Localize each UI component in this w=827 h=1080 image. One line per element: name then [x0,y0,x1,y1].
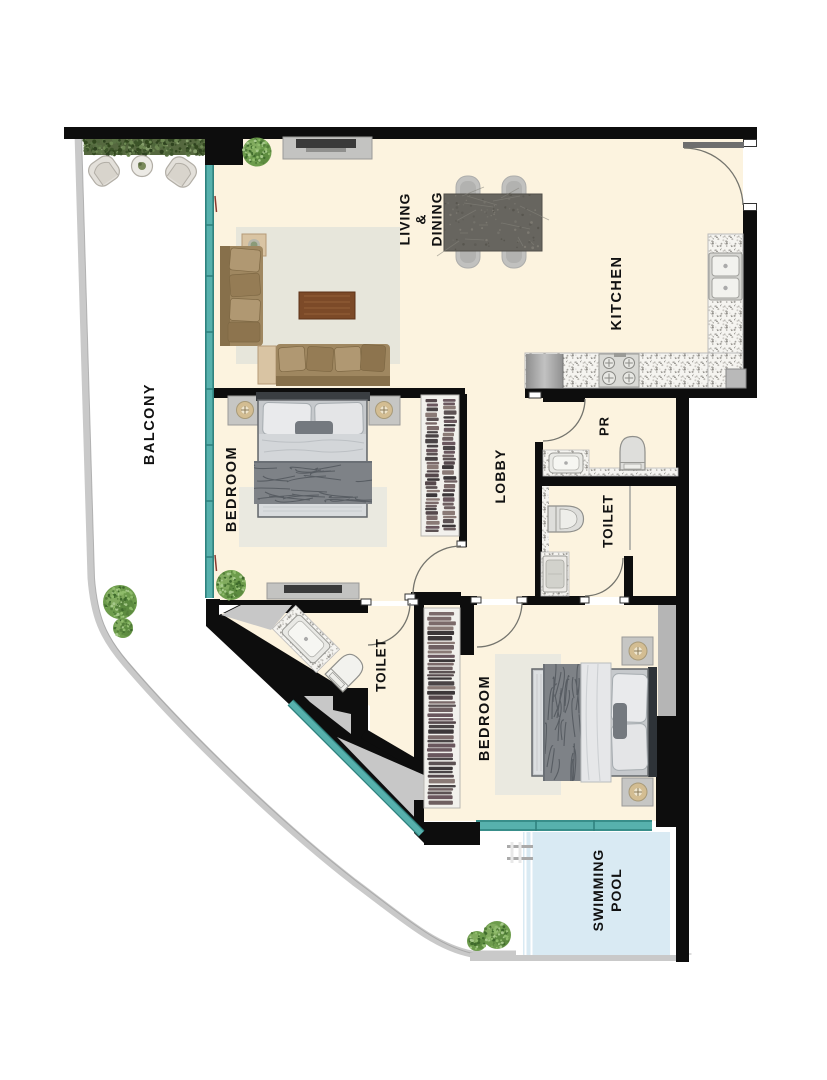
svg-text:DINING: DINING [429,192,445,247]
svg-text:SWIMMING: SWIMMING [590,849,606,932]
svg-text:LIVING: LIVING [397,193,413,246]
svg-text:&: & [413,213,429,224]
svg-text:TOILET: TOILET [374,638,389,692]
svg-text:BEDROOM: BEDROOM [477,675,493,761]
svg-text:POOL: POOL [608,868,624,912]
svg-text:KITCHEN: KITCHEN [609,256,625,331]
svg-text:LOBBY: LOBBY [492,449,508,504]
svg-text:PR: PR [597,416,612,436]
svg-text:BALCONY: BALCONY [142,383,158,465]
svg-text:BEDROOM: BEDROOM [224,446,240,532]
svg-text:TOILET: TOILET [601,494,616,548]
